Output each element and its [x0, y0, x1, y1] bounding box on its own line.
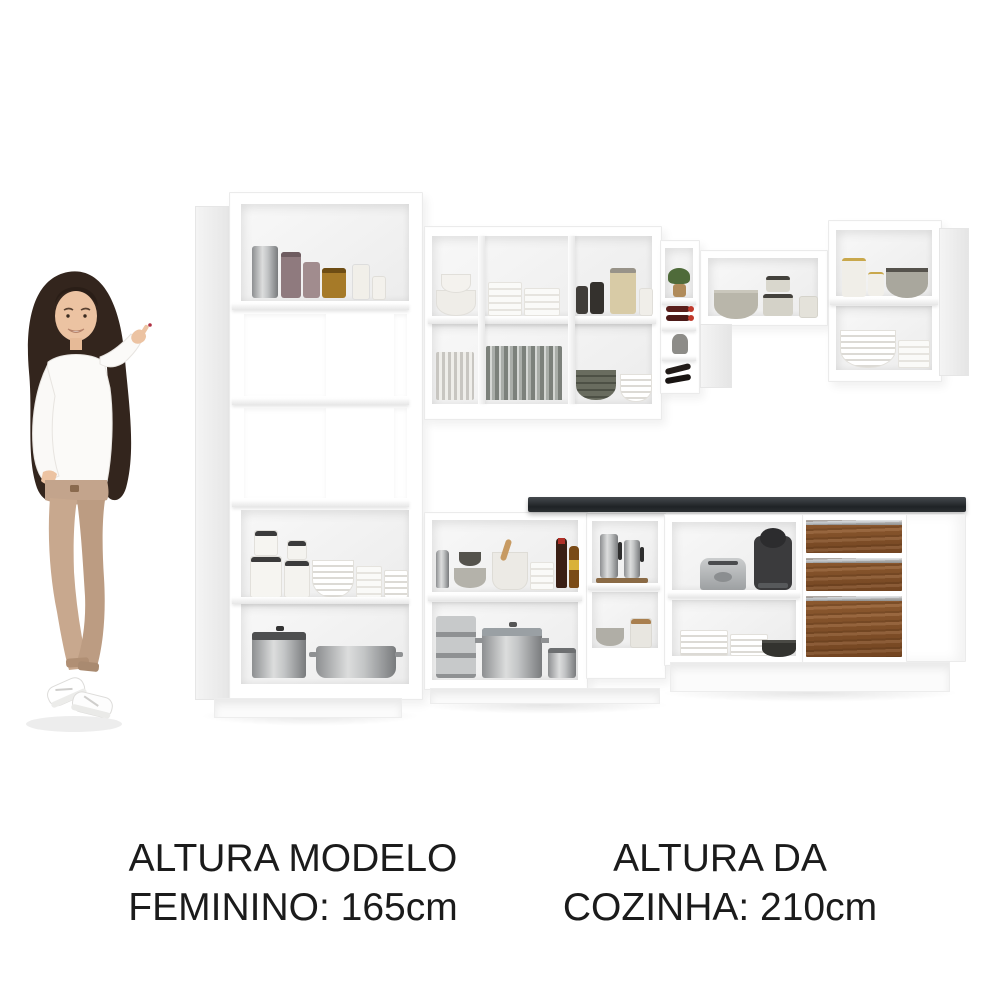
white-bowl-stack: [620, 374, 652, 402]
large-bowl-stack: [840, 330, 896, 368]
wine-bottles: [666, 315, 690, 321]
base-plinth-middle: [430, 688, 660, 704]
upper-right-side-panel: [939, 228, 969, 376]
beige-mason-jar: [610, 268, 636, 314]
model-height-caption: ALTURA MODELO FEMININO: 165cm: [93, 834, 493, 932]
olive-bowl-stack: [576, 370, 616, 400]
drawer-1: [806, 520, 902, 553]
canister-stack: [766, 276, 790, 292]
cup-saucer-stack: [488, 282, 522, 316]
taupe-canister: [303, 262, 320, 298]
lidded-canister-small: [254, 530, 278, 556]
upper-divider: [568, 236, 575, 404]
pot-with-glass-lid: [482, 628, 542, 678]
base-shelf: [588, 584, 660, 590]
white-jar: [639, 288, 653, 316]
toaster: [700, 558, 746, 590]
tall-cabinet-opening: [244, 408, 326, 498]
base-shelf: [428, 594, 582, 601]
product-image: ALTURA MODELO FEMININO: 165cm ALTURA DA …: [0, 0, 1000, 1000]
model-eye: [83, 314, 86, 317]
lidded-pot: [252, 632, 306, 678]
wine-bottles: [666, 306, 690, 312]
steel-pitcher: [624, 540, 640, 578]
gold-rim-canister-small: [868, 272, 884, 296]
wine-rack-shelf: [662, 356, 696, 361]
base-end-panel: [906, 514, 966, 662]
model-height-line2: FEMININO: 165cm: [93, 883, 493, 932]
steel-pitcher: [600, 534, 618, 578]
base-shelf: [668, 592, 800, 598]
drawer-handle: [806, 558, 902, 563]
base-plinth-right: [670, 662, 950, 692]
wood-tray: [596, 578, 648, 583]
dark-frying-pan: [762, 640, 796, 657]
small-bowl-stack: [898, 340, 930, 368]
gray-bowl: [454, 568, 486, 588]
drawer-handle: [806, 596, 902, 601]
tall-cabinet-side-panel: [195, 206, 233, 700]
small-bowl-stack: [530, 562, 554, 590]
white-bowl: [436, 290, 476, 316]
kitchen-height-line2: COZINHA: 210cm: [520, 883, 920, 932]
model-nail-polish: [148, 323, 152, 327]
bowl-stack: [312, 560, 354, 598]
cup-saucer-stack: [524, 288, 560, 316]
oil-bottle: [569, 546, 579, 588]
casserole-pan: [316, 646, 396, 678]
steel-canister: [252, 246, 278, 298]
gray-vase: [672, 334, 688, 354]
lidded-canister-small: [287, 540, 307, 560]
countertop: [528, 497, 966, 512]
white-bowl-small: [441, 274, 471, 293]
female-model-photo: [10, 266, 174, 738]
corner-return-panel: [700, 324, 732, 388]
model-sneaker-right: [71, 690, 115, 719]
drawer-handle: [806, 520, 902, 525]
dark-jar: [590, 282, 604, 314]
side-plate-stack: [436, 352, 474, 400]
coffee-machine: [754, 536, 792, 590]
scalloped-gray-bowl: [714, 290, 758, 319]
gray-bowl: [886, 268, 928, 298]
wine-rack-shelf: [662, 326, 696, 331]
model-neck: [70, 338, 82, 350]
amber-glass-jar: [322, 268, 346, 298]
tall-cabinet-plinth: [214, 698, 402, 718]
dark-bowl-small: [459, 552, 481, 566]
model-belt-buttons: [70, 485, 79, 492]
white-jar-small: [372, 276, 386, 300]
canister-stack: [763, 294, 793, 316]
tall-cabinet-shelf: [232, 500, 409, 507]
tall-cabinet-shelf: [232, 398, 409, 405]
drawer-2: [806, 558, 902, 591]
lidded-canister: [284, 560, 310, 598]
gray-bowl: [596, 628, 624, 646]
kitchen-height-line1: ALTURA DA: [520, 834, 920, 883]
grater: [436, 550, 449, 588]
small-canister: [799, 296, 818, 318]
tall-cabinet-opening: [244, 314, 326, 396]
tall-cabinet-opening: [394, 314, 407, 396]
model-eye: [66, 314, 69, 317]
taupe-canister: [281, 252, 301, 298]
drinking-glasses: [486, 346, 562, 400]
model-face: [55, 291, 97, 341]
mortar-and-pestle: [492, 552, 528, 590]
upper-shelf: [830, 298, 938, 305]
plant: [668, 268, 690, 284]
drawer-3: [806, 596, 902, 657]
gold-rim-canister: [842, 258, 866, 297]
plant-pot: [673, 284, 686, 297]
tall-cabinet-opening: [394, 408, 407, 498]
tall-cabinet-shelf: [232, 303, 409, 310]
kitchen-height-caption: ALTURA DA COZINHA: 210cm: [520, 834, 920, 932]
upper-divider: [478, 236, 485, 404]
model-height-line1: ALTURA MODELO: [93, 834, 493, 883]
steamer-pot-stack: [436, 616, 476, 678]
lidded-canister: [250, 556, 282, 598]
cup-stack: [356, 566, 382, 598]
white-jar: [352, 264, 370, 300]
wood-lid-canister: [630, 618, 652, 648]
small-pot: [548, 648, 576, 678]
plate-stack: [680, 630, 728, 656]
dark-jar: [576, 286, 588, 314]
upper-shelf: [428, 317, 656, 324]
plate-stack: [384, 570, 408, 598]
wine-bottle: [556, 538, 567, 588]
tall-cabinet-shelf: [232, 597, 409, 604]
wine-rack-shelf: [662, 300, 696, 305]
